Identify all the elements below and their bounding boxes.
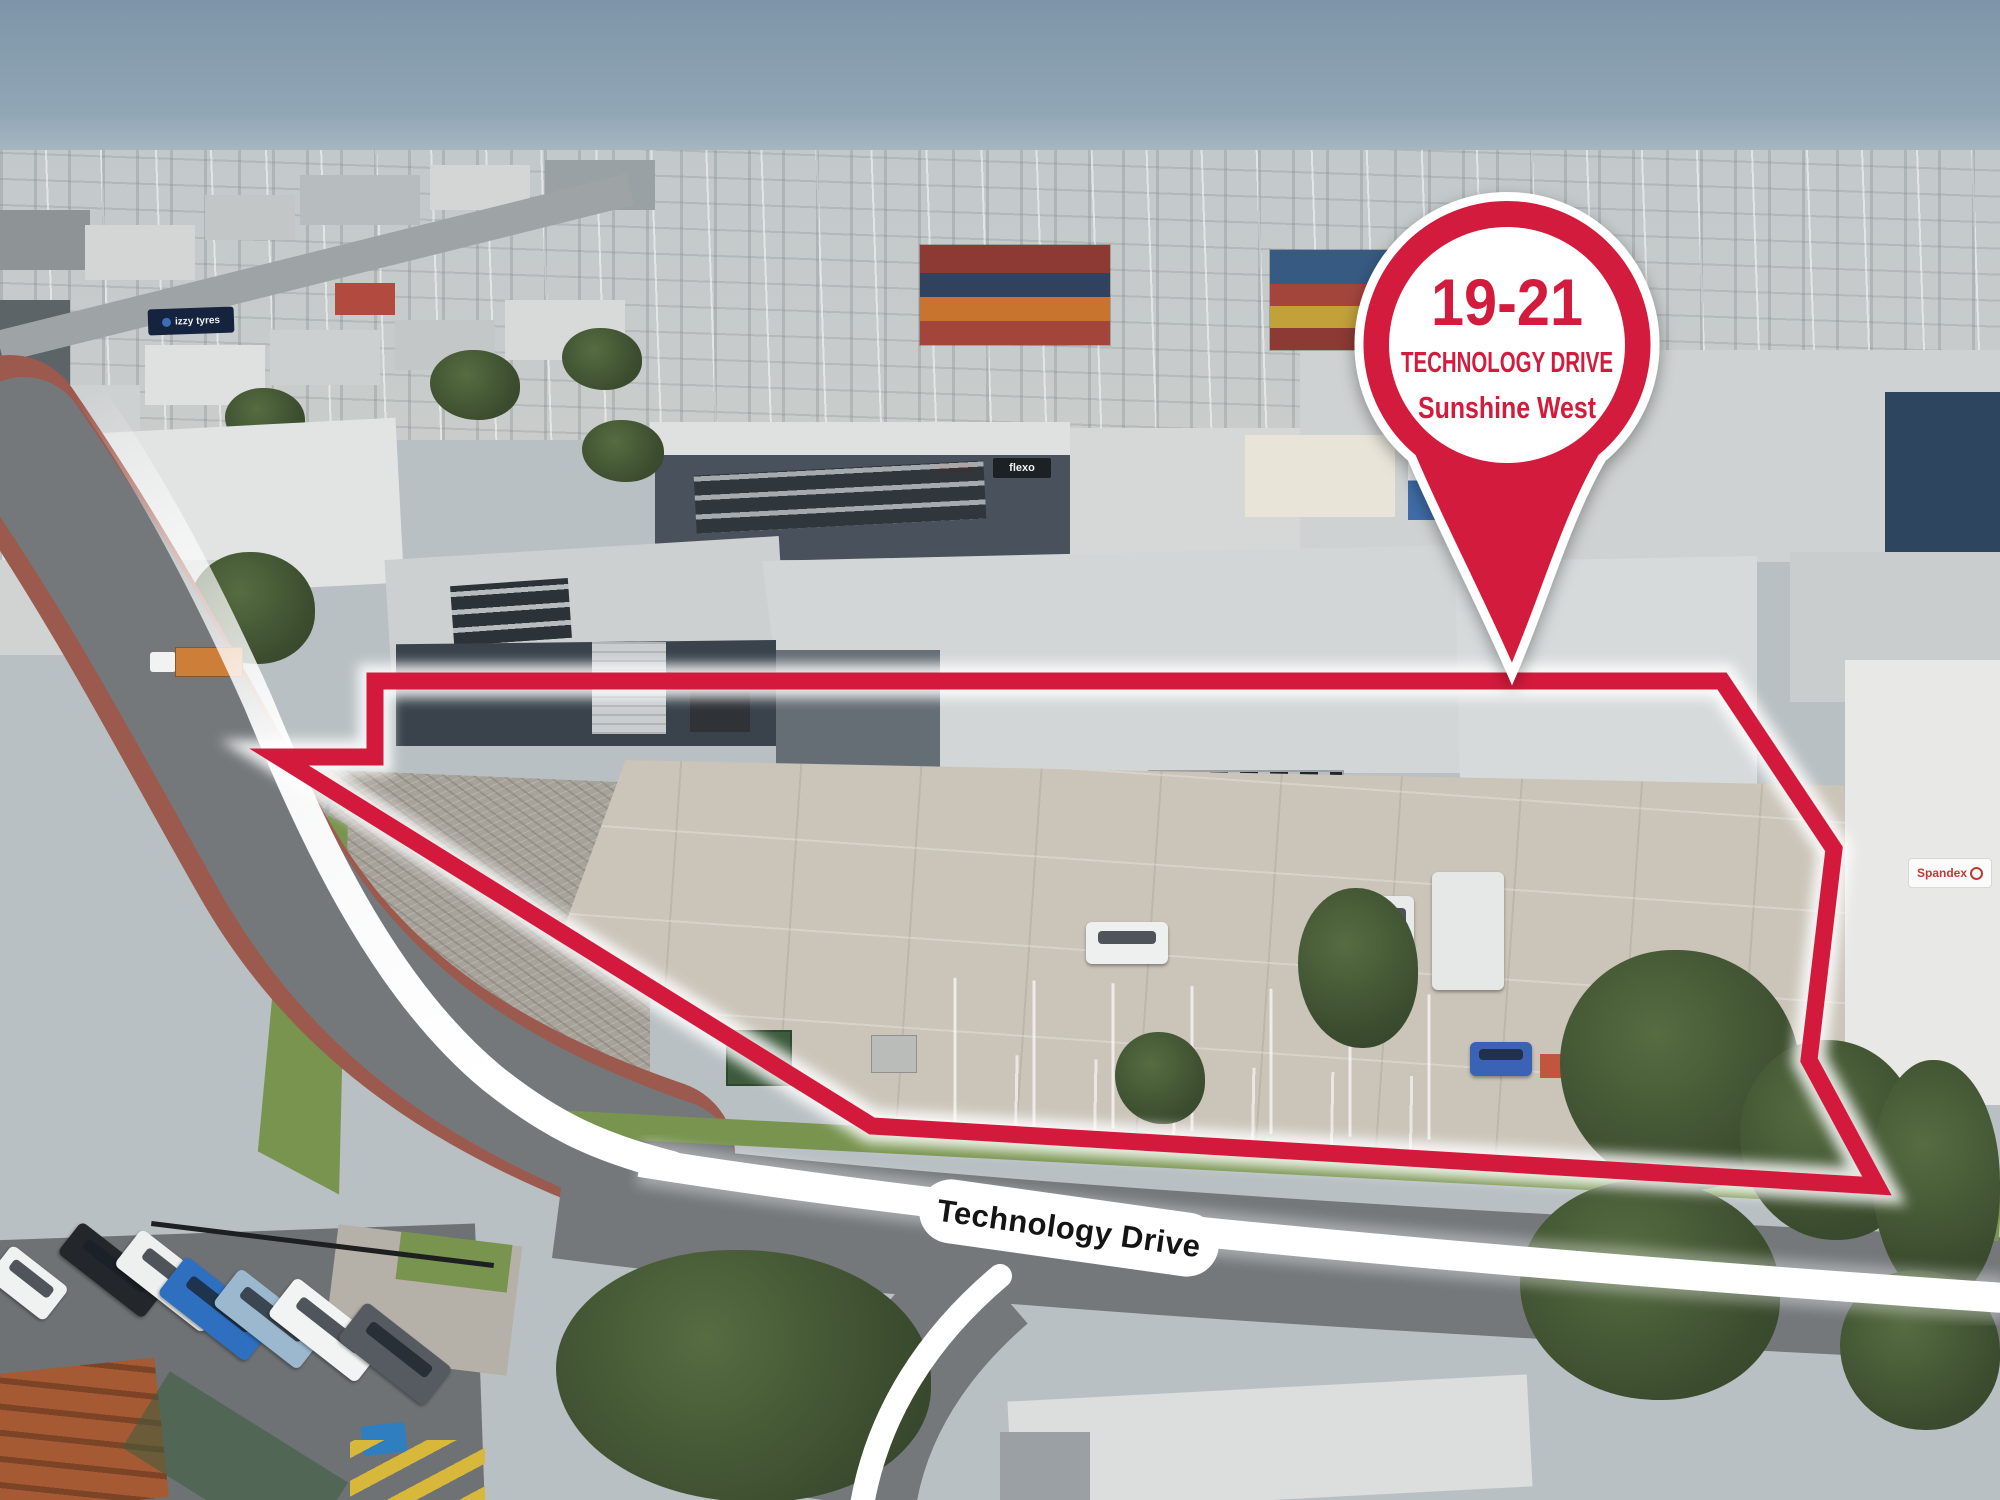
pin-suburb: Sunshine West	[1418, 390, 1596, 425]
route-highlight	[88, 392, 2000, 1500]
aerial-property-photo: izzy tyres flexo	[0, 0, 2000, 1500]
street-name-label: Technology Drive	[915, 1175, 1223, 1280]
annotation-overlay: 19-21 TECHNOLOGY DRIVE Sunshine West Tec…	[0, 0, 2000, 1500]
location-pin: 19-21 TECHNOLOGY DRIVE Sunshine West	[1359, 197, 1655, 674]
pin-street-name: TECHNOLOGY DRIVE	[1401, 347, 1613, 379]
route-line-left-curve	[88, 392, 672, 1166]
route-line-branch	[862, 1276, 1000, 1500]
pin-inner-disc	[1389, 227, 1625, 463]
pin-street-number: 19-21	[1431, 265, 1583, 339]
